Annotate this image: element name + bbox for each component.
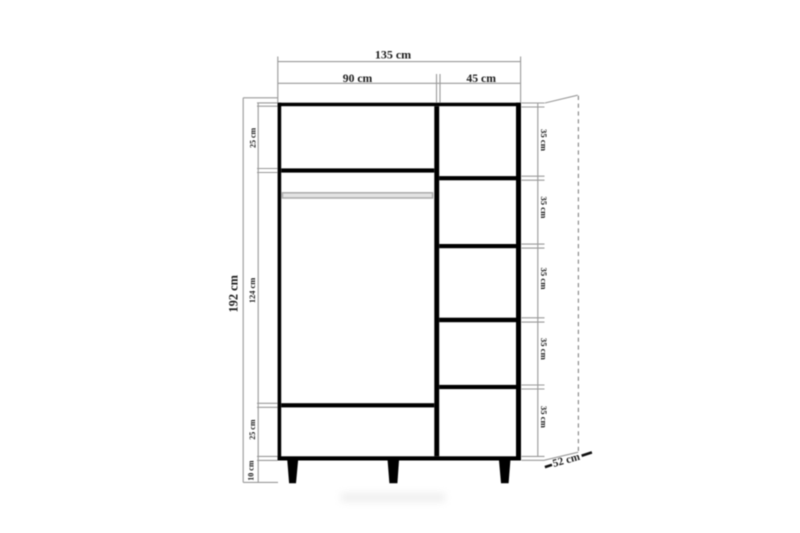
svg-text:35 cm: 35 cm <box>539 338 549 361</box>
svg-text:192 cm: 192 cm <box>227 274 241 312</box>
svg-text:25 cm: 25 cm <box>248 419 257 440</box>
svg-text:45 cm: 45 cm <box>466 72 496 85</box>
svg-text:90 cm: 90 cm <box>343 72 373 85</box>
svg-text:135 cm: 135 cm <box>375 48 411 62</box>
svg-text:124 cm: 124 cm <box>248 278 257 303</box>
svg-text:35 cm: 35 cm <box>539 268 549 291</box>
svg-text:25 cm: 25 cm <box>248 127 257 148</box>
svg-text:35 cm: 35 cm <box>539 129 549 152</box>
svg-text:35 cm: 35 cm <box>539 196 549 219</box>
svg-text:10 cm: 10 cm <box>247 460 256 481</box>
svg-text:35 cm: 35 cm <box>539 406 549 429</box>
